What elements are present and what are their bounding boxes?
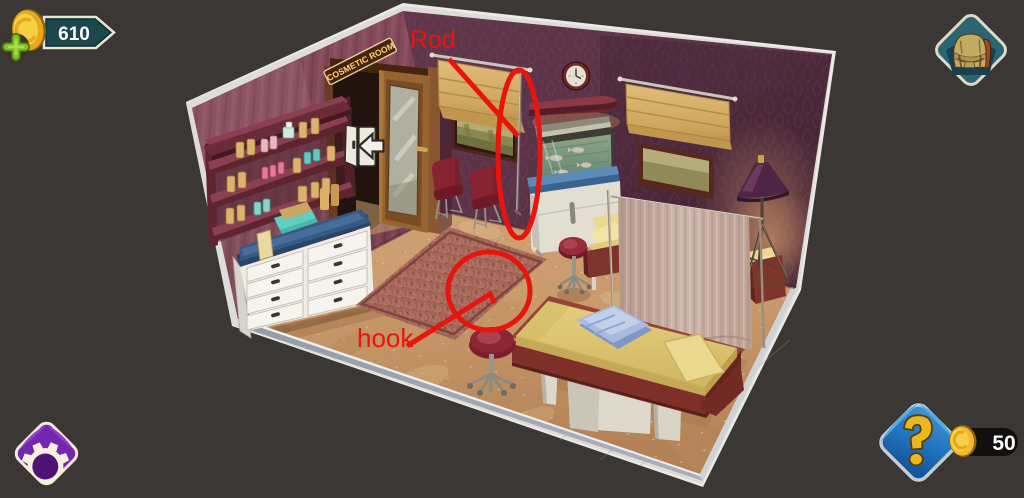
svg-text:Rod: Rod <box>410 26 456 54</box>
svg-text:610: 610 <box>58 24 90 45</box>
svg-text:hook: hook <box>357 323 414 353</box>
svg-text:50: 50 <box>992 432 1015 455</box>
